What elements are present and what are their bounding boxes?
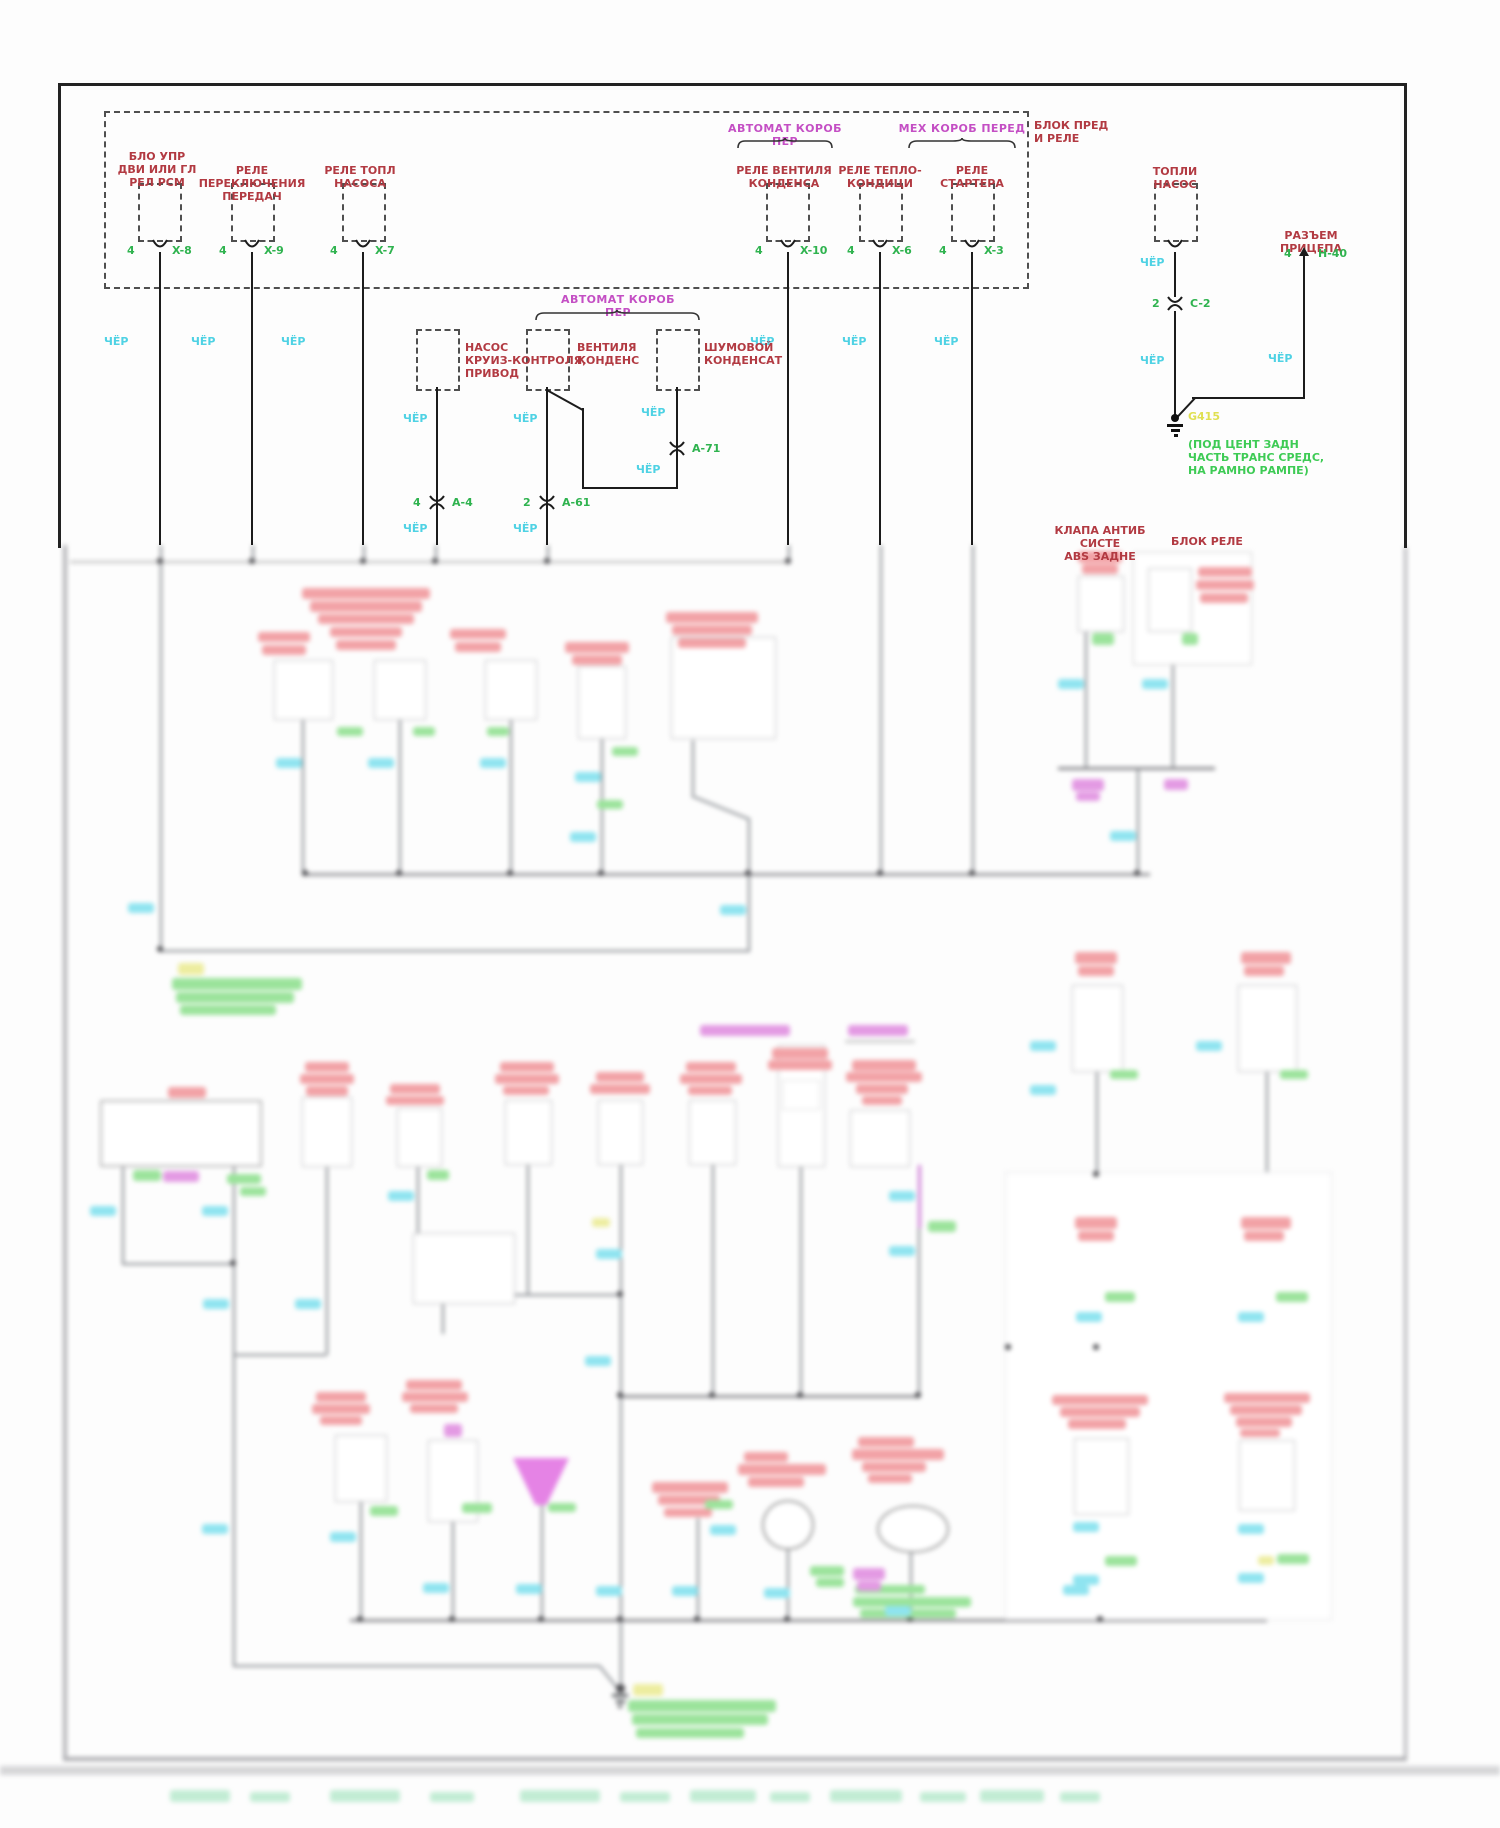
blurred-label-blob — [1244, 1231, 1284, 1241]
relay-box-fuel-pump — [342, 183, 386, 242]
conn-x9: X-9 — [264, 244, 284, 257]
blurred-label-blob — [487, 727, 509, 736]
blurred-label-blob — [768, 1060, 832, 1070]
blurred-component-box — [1074, 1438, 1129, 1515]
pin-fork-icon — [1166, 239, 1184, 252]
wiring-diagram-page: БЛОК ПРЕДИ РЕЛЕ БЛО УПРДВИ ИЛИ ГЛРЕЛ РСМ… — [0, 0, 1500, 1828]
blurred-label-blob — [430, 1792, 474, 1802]
blurred-label-blob — [240, 1187, 266, 1196]
blurred-wire — [1137, 768, 1139, 873]
blurred-label-blob — [852, 1449, 944, 1460]
label-group-manual-trans: МЕХ КОРОБ ПЕРЕД — [897, 122, 1027, 135]
pin-fork-icon — [963, 239, 981, 252]
pin-fork-icon — [151, 239, 169, 252]
blurred-label-blob — [720, 905, 746, 915]
blurred-label-blob — [1244, 966, 1284, 976]
blurred-wire — [360, 1500, 362, 1620]
blurred-label-blob — [1072, 779, 1104, 791]
blurred-wire — [787, 1546, 789, 1620]
conn-a71: A-71 — [692, 442, 720, 455]
blurred-label-blob — [632, 1714, 768, 1725]
blurred-label-blob — [1060, 1407, 1140, 1417]
blurred-label-blob — [410, 1404, 458, 1413]
blurred-component-box — [782, 1080, 820, 1110]
blurred-label-blob — [1030, 1085, 1056, 1095]
blurred-label-blob — [772, 1048, 828, 1059]
blurred-label-blob — [680, 1074, 742, 1084]
wire-color-a61-up: ЧЁР — [513, 412, 537, 425]
frame-right — [1404, 83, 1407, 548]
blurred-label-blob — [300, 1074, 354, 1084]
blurred-component-box — [302, 1097, 352, 1167]
blurred-wire — [918, 1228, 920, 1396]
conn-h40: H-40 — [1318, 247, 1347, 260]
fuel-pump-box — [1154, 183, 1198, 242]
blurred-component-box — [578, 666, 626, 739]
blurred-label-blob — [710, 1525, 736, 1535]
blurred-label-blob — [1105, 1556, 1137, 1566]
blurred-wire — [233, 1354, 326, 1356]
label-cond-fan: ВЕНТИЛЯКОНДЕНС — [577, 328, 687, 367]
blurred-component-ellipse — [762, 1500, 814, 1550]
blurred-label-blob — [336, 640, 396, 650]
brace-manual-trans — [908, 137, 1016, 149]
blurred-label-blob — [427, 1170, 449, 1180]
wire-x6 — [879, 252, 881, 545]
blurred-label-blob — [652, 1482, 728, 1493]
blurred-label-blob — [597, 800, 623, 809]
connector-a71-icon — [668, 441, 686, 456]
blurred-label-blob — [1238, 1573, 1264, 1583]
blurred-junction-dot — [544, 558, 551, 565]
wire-x10 — [787, 252, 789, 545]
blurred-wire — [1404, 547, 1407, 1760]
blurred-label-blob — [413, 727, 435, 736]
blurred-label-blob — [495, 1074, 559, 1084]
blurred-label-blob — [163, 1171, 199, 1182]
ground-g415-location: (ПОД ЦЕНТ ЗАДНЧАСТЬ ТРАНС СРЕДС,НА РАМНО… — [1188, 425, 1348, 477]
wire-color-fp-up: ЧЁР — [1140, 256, 1164, 269]
blurred-label-blob — [688, 1086, 732, 1095]
blurred-component-box — [689, 1100, 736, 1165]
blurred-wire — [302, 718, 304, 876]
relay-box-ac — [859, 183, 903, 242]
blurred-component-box — [274, 660, 333, 720]
conn-x6: X-6 — [892, 244, 912, 257]
conn-x7: X-7 — [375, 244, 395, 257]
blurred-label-blob — [889, 1191, 915, 1201]
cruise-pump-box — [416, 329, 460, 391]
wire-color-x7: ЧЁР — [281, 335, 305, 348]
blurred-wire — [70, 561, 788, 563]
blurred-label-blob — [172, 978, 302, 990]
blurred-label-blob — [1224, 1393, 1310, 1403]
blurred-wire — [442, 1302, 444, 1334]
blurred-ground-stroke — [612, 1694, 628, 1697]
pin-x9: 4 — [219, 244, 227, 257]
blurred-label-blob — [1075, 952, 1117, 964]
conn-a61: A-61 — [562, 496, 590, 509]
wire-a4 — [436, 387, 438, 545]
blurred-ground-stroke — [616, 1700, 625, 1703]
blurred-component-box — [1072, 985, 1123, 1072]
label-noise-cond: ШУМОВОЙКОНДЕНСАТ — [704, 328, 814, 367]
blurred-label-blob — [406, 1380, 462, 1390]
blurred-component-box — [397, 1108, 442, 1167]
relay-box-pcm — [138, 183, 182, 242]
blurred-label-blob — [1068, 1419, 1126, 1429]
blurred-component-box — [413, 1233, 515, 1304]
blurred-wire — [1096, 1070, 1098, 1175]
pin-fork-icon — [243, 239, 261, 252]
blurred-wire — [122, 1263, 233, 1265]
blurred-label-blob — [306, 1086, 348, 1096]
blurred-label-blob — [330, 1790, 400, 1802]
blurred-wire — [972, 545, 974, 876]
blurred-label-blob — [133, 1170, 161, 1181]
wire-color-a71-up: ЧЁР — [641, 406, 665, 419]
blurred-wire — [305, 873, 1150, 876]
blurred-label-blob — [1230, 1405, 1302, 1415]
ground-g415-dot — [1171, 414, 1179, 422]
blurred-label-blob — [462, 1503, 492, 1513]
blurred-label-blob — [845, 1040, 915, 1043]
blurred-label-blob — [1060, 1792, 1100, 1802]
pin-x7: 4 — [330, 244, 338, 257]
blurred-label-blob — [202, 1206, 228, 1216]
blurred-label-blob — [450, 629, 506, 639]
blurred-label-blob — [330, 1532, 356, 1542]
blurred-label-blob — [1076, 1312, 1102, 1322]
wire-color-h40: ЧЁР — [1268, 352, 1292, 365]
connector-c2-icon — [1166, 296, 1184, 311]
blurred-label-blob — [1076, 792, 1100, 801]
wire-x8 — [159, 252, 161, 545]
wire-x9 — [251, 252, 253, 545]
blurred-wire — [527, 1163, 529, 1294]
blurred-label-blob — [748, 1477, 804, 1487]
blurred-label-blob — [520, 1790, 600, 1802]
blurred-label-blob — [312, 1404, 370, 1414]
frame-left — [58, 83, 61, 548]
blurred-label-blob — [572, 655, 622, 665]
blurred-junction-dot — [249, 558, 256, 565]
pin-c2: 2 — [1152, 297, 1160, 310]
label-trailer-connector: РАЗЪЕМПРИЦЕПА — [1251, 216, 1371, 255]
label-cruise-pump: НАСОСКРУИЗ-КОНТРОЛЯ,ПРИВОД — [465, 328, 595, 380]
blurred-label-blob — [633, 1684, 663, 1696]
pin-x6: 4 — [847, 244, 855, 257]
blurred-label-blob — [590, 1084, 650, 1094]
blurred-label-blob — [858, 1437, 914, 1447]
connector-a61-icon — [538, 495, 556, 510]
blurred-wire — [1266, 1070, 1268, 1175]
wire-h40-horiz — [1192, 397, 1305, 399]
blurred-label-blob — [810, 1566, 844, 1576]
blurred-label-blob — [770, 1792, 810, 1802]
blurred-label-blob — [1280, 1070, 1308, 1079]
blurred-label-blob — [203, 1299, 229, 1309]
blurred-label-blob — [596, 1072, 644, 1082]
blurred-label-blob — [570, 832, 596, 842]
blurred-label-blob — [830, 1790, 902, 1802]
ground-g415-id: G415 — [1188, 410, 1220, 423]
blurred-component-box — [598, 1100, 643, 1165]
relay-box-cond-fan — [766, 183, 810, 242]
wire-a61 — [546, 387, 548, 545]
blurred-label-blob — [686, 1062, 736, 1072]
blurred-label-blob — [262, 645, 306, 655]
blurred-component-box — [374, 660, 426, 720]
label-starter-relay: РЕЛЕСТАРТЕРА — [912, 151, 1032, 190]
blurred-label-blob — [612, 747, 638, 756]
trailer-arrow-icon — [1299, 247, 1309, 256]
blurred-label-blob — [310, 601, 422, 612]
blurred-component-box — [100, 1100, 262, 1167]
blurred-label-blob — [980, 1790, 1044, 1802]
conn-x8: X-8 — [172, 244, 192, 257]
blurred-label-blob — [202, 1524, 228, 1534]
blurred-label-blob — [857, 1581, 881, 1591]
blurred-wire — [122, 1163, 124, 1263]
wire-color-fp-dn: ЧЁР — [1140, 354, 1164, 367]
blurred-label-blob — [848, 1025, 908, 1036]
wire-x7 — [362, 252, 364, 545]
wire-h40 — [1303, 256, 1305, 399]
conn-a4: A-4 — [452, 496, 473, 509]
blurred-component-box — [671, 637, 776, 739]
blurred-label-blob — [330, 627, 402, 637]
wire-color-a4-up: ЧЁР — [403, 412, 427, 425]
ground-g415-stroke3 — [1174, 434, 1178, 437]
ground-g415-stroke1 — [1167, 424, 1183, 427]
blurred-wire — [800, 1165, 802, 1396]
blurred-label-blob — [295, 1299, 321, 1309]
blurred-label-blob — [1082, 564, 1118, 574]
blurred-wire — [452, 1520, 454, 1620]
blurred-label-blob — [402, 1392, 468, 1402]
blurred-label-blob — [500, 1062, 554, 1072]
blurred-label-blob — [368, 758, 394, 768]
pin-x10: 4 — [755, 244, 763, 257]
blurred-label-blob — [1110, 1070, 1138, 1079]
blurred-label-blob — [862, 1462, 926, 1472]
brace-auto-trans-mid — [535, 309, 700, 321]
blurred-wire — [697, 1518, 699, 1620]
blurred-junction-dot — [785, 558, 792, 565]
blurred-label-blob — [885, 1606, 911, 1616]
blurred-label-blob — [423, 1583, 449, 1593]
blurred-label-blob — [386, 1096, 444, 1105]
blurred-junction-dot — [360, 558, 367, 565]
blurred-junction-dot — [157, 558, 164, 565]
label-fuel-pump: ТОПЛИНАСОС — [1115, 152, 1235, 191]
blurred-wire — [399, 718, 401, 876]
conn-x3: X-3 — [984, 244, 1004, 257]
blurred-wire — [748, 876, 750, 950]
blurred-label-blob — [705, 1500, 733, 1509]
blurred-label-blob — [90, 1206, 116, 1216]
brace-auto-trans-top — [737, 137, 833, 149]
blurred-component-box — [1239, 1440, 1295, 1511]
blurred-wire — [880, 545, 882, 876]
pin-a4: 4 — [413, 496, 421, 509]
blurred-component-box — [1148, 568, 1192, 632]
blurred-component-box — [1238, 985, 1297, 1072]
blurred-label-blob — [1258, 1556, 1274, 1565]
blurred-wire — [712, 1165, 714, 1396]
blurred-label-blob — [853, 1568, 885, 1580]
blurred-junction-dot — [915, 1392, 922, 1399]
blurred-label-blob — [258, 632, 310, 642]
label-fuel-pump-relay: РЕЛЕ ТОПЛНАСОСА — [300, 151, 420, 190]
blurred-label-blob — [1030, 1041, 1056, 1051]
blurred-wire — [233, 1665, 600, 1667]
blurred-label-blob — [1240, 1429, 1280, 1437]
blurred-label-blob — [846, 1072, 922, 1082]
blurred-label-blob — [1073, 1522, 1099, 1532]
blurred-wire — [1085, 630, 1087, 768]
blurred-label-blob — [370, 1506, 398, 1516]
blurred-label-blob — [628, 1700, 776, 1712]
blurred-label-blob — [1073, 1575, 1099, 1585]
blurred-label-blob — [176, 992, 294, 1003]
blurred-label-blob — [1277, 1554, 1309, 1564]
blurred-label-blob — [592, 1218, 610, 1227]
wire-color-x8: ЧЁР — [104, 335, 128, 348]
blurred-label-blob — [1052, 1395, 1148, 1405]
blurred-label-blob — [1164, 779, 1188, 790]
blurred-component-box — [1078, 576, 1124, 632]
blurred-label-blob — [862, 1096, 902, 1105]
blurred-label-blob — [178, 963, 204, 975]
blurred-label-blob — [1238, 1524, 1264, 1534]
blurred-label-blob — [690, 1790, 756, 1802]
blurred-label-blob — [1236, 1417, 1292, 1427]
blurred-label-blob — [764, 1588, 790, 1598]
blurred-label-blob — [1196, 1041, 1222, 1051]
blurred-label-blob — [700, 1025, 790, 1036]
blurred-label-blob — [678, 638, 746, 648]
blurred-label-blob — [744, 1452, 788, 1462]
blurred-label-blob — [316, 1392, 366, 1402]
pin-a61: 2 — [523, 496, 531, 509]
wire-color-a61-dn: ЧЁР — [513, 522, 537, 535]
blurred-wire — [233, 1163, 235, 1355]
blurred-label-blob — [585, 1356, 611, 1366]
blurred-label-blob — [636, 1728, 744, 1738]
blurred-label-blob — [390, 1084, 440, 1094]
blurred-wire — [326, 1165, 328, 1355]
blurred-funnel-component — [513, 1458, 569, 1505]
pin-fork-icon — [354, 239, 372, 252]
wire-fuel-pump-lower — [1174, 311, 1176, 417]
blurred-label-blob — [276, 758, 302, 768]
ground-g415-stroke2 — [1171, 429, 1180, 432]
blurred-label-blob — [1241, 1217, 1291, 1229]
blurred-label-blob — [738, 1464, 826, 1475]
blurred-junction-dot — [230, 1260, 237, 1267]
frame-top — [58, 83, 1406, 86]
blurred-label-blob — [170, 1790, 230, 1802]
fuse-relay-block-label: БЛОК ПРЕДИ РЕЛЕ — [1034, 106, 1124, 145]
blurred-label-blob — [480, 758, 506, 768]
blurred-wire — [620, 1620, 622, 1688]
blurred-label-blob — [388, 1191, 414, 1201]
blurred-wire — [0, 1766, 1500, 1775]
blurred-label-blob — [455, 642, 501, 652]
blurred-component-box — [335, 1435, 387, 1502]
blurred-label-blob — [503, 1086, 549, 1095]
pin-fork-icon — [871, 239, 889, 252]
wire-color-x3: ЧЁР — [934, 335, 958, 348]
blurred-label-blob — [168, 1087, 206, 1098]
blurred-wire — [692, 740, 694, 795]
blurred-label-blob — [1078, 1231, 1114, 1241]
conn-c2: C-2 — [1190, 297, 1211, 310]
blurred-label-blob — [575, 772, 601, 782]
wire-a71-branch-v — [582, 408, 584, 488]
blurred-label-blob — [548, 1503, 576, 1512]
blurred-label-blob — [1196, 580, 1254, 590]
blurred-label-blob — [250, 1792, 290, 1802]
blurred-label-blob — [128, 903, 154, 913]
blurred-label-blob — [1238, 1312, 1264, 1322]
blurred-label-blob — [1078, 966, 1114, 976]
blurred-label-blob — [516, 1584, 542, 1594]
blurred-label-blob — [596, 1249, 622, 1259]
blurred-label-blob — [1142, 679, 1168, 689]
blurred-label-blob — [1075, 1217, 1117, 1229]
blurred-label-blob — [1182, 633, 1198, 645]
blurred-component-ellipse — [877, 1505, 949, 1553]
blurred-junction-dot — [617, 1291, 624, 1298]
blurred-label-blob — [889, 1246, 915, 1256]
wire-color-a71-dn: ЧЁР — [636, 463, 660, 476]
wire-color-x9: ЧЁР — [191, 335, 215, 348]
blurred-label-blob — [1241, 952, 1291, 964]
blurred-wire — [233, 1355, 235, 1665]
wire-x3 — [971, 252, 973, 545]
blurred-label-blob — [620, 1792, 670, 1802]
blurred-label-blob — [672, 1586, 698, 1596]
blurred-label-blob — [1058, 679, 1084, 689]
blurred-wire — [918, 1165, 921, 1228]
blurred-label-blob — [227, 1174, 261, 1184]
blurred-label-blob — [666, 612, 758, 623]
blurred-wire — [510, 718, 512, 876]
blurred-label-blob — [853, 1597, 971, 1607]
blurred-wire — [63, 545, 67, 1760]
blurred-ground-stroke — [618, 1705, 622, 1708]
blurred-label-blob — [928, 1221, 956, 1232]
pin-x8: 4 — [127, 244, 135, 257]
blurred-label-blob — [1105, 1292, 1135, 1302]
wire-color-a4-dn: ЧЁР — [403, 522, 427, 535]
blurred-wire-diag — [691, 795, 748, 820]
blurred-label-blob — [1063, 1585, 1089, 1595]
wire-a71 — [676, 387, 678, 489]
blurred-wire — [618, 1395, 920, 1398]
blurred-label-blob — [1110, 831, 1136, 841]
conn-x10: X-10 — [800, 244, 827, 257]
blurred-label-blob — [1092, 633, 1114, 645]
blurred-label-blob — [856, 1084, 908, 1094]
wire-a71-branch-h — [582, 487, 678, 489]
blurred-component-box — [505, 1100, 552, 1165]
blurred-label-blob — [1200, 593, 1248, 603]
blurred-wire — [63, 1757, 1407, 1761]
